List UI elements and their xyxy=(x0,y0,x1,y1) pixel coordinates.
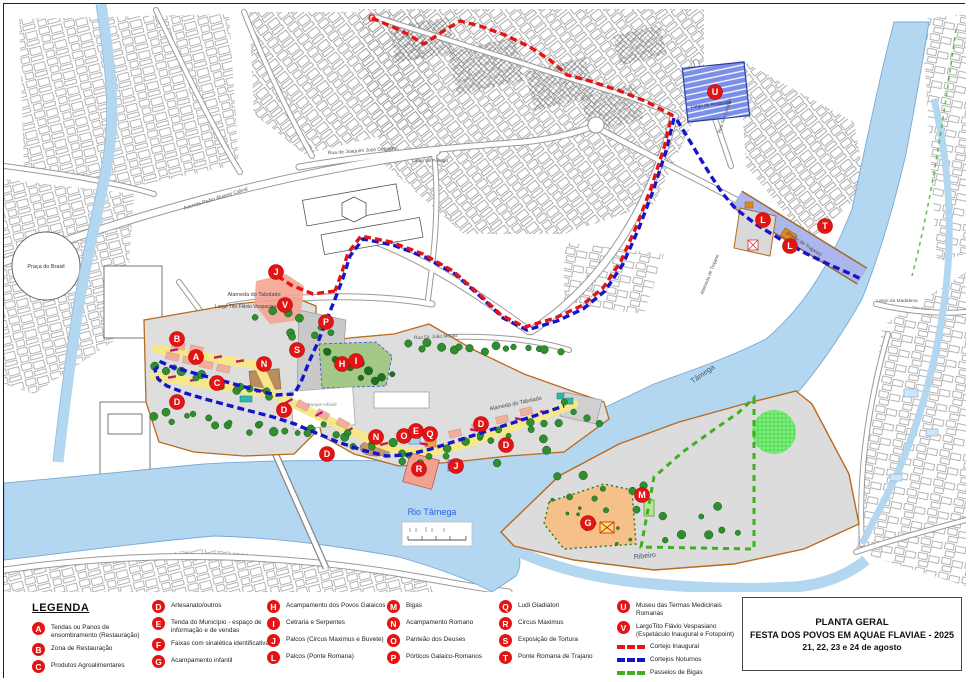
legend-label: Artesanato/outros xyxy=(171,600,221,610)
map-marker-N: N xyxy=(257,357,272,372)
legend-label: Palcos (Ponte Romana) xyxy=(286,651,354,661)
legend-label: Zona de Restauração xyxy=(51,643,112,653)
map-marker-A: A xyxy=(189,350,204,365)
tree-icon xyxy=(699,514,704,519)
tree-icon xyxy=(659,512,667,520)
tree-icon xyxy=(555,419,563,427)
tree-icon xyxy=(304,429,311,436)
svg-text:U: U xyxy=(712,87,719,97)
legend-marker-J: J xyxy=(267,634,280,647)
map-marker-P: P xyxy=(319,315,334,330)
tree-icon xyxy=(371,377,379,385)
legend-label: Panteão dos Deuses xyxy=(406,634,465,644)
tree-icon xyxy=(390,372,395,377)
tree-icon xyxy=(321,422,327,428)
tree-icon xyxy=(466,344,474,352)
legend-label: Faixas com sinalética identificativa xyxy=(171,638,269,648)
legend-item-E: ETenda do Município - espaço de informaç… xyxy=(152,617,270,634)
tree-icon xyxy=(246,430,252,436)
legend-label: Tendas ou Panos de ensombramento (Restau… xyxy=(51,622,150,639)
legend-label: Bigas xyxy=(406,600,422,610)
legend-item-A: ATendas ou Panos de ensombramento (Resta… xyxy=(32,622,150,639)
title-block: PLANTA GERAL FESTA DOS POVOS EM AQUAE FL… xyxy=(742,597,962,671)
legend-item-D: DArtesanato/outros xyxy=(152,600,270,613)
tree-icon xyxy=(577,513,580,516)
tree-icon xyxy=(526,345,532,351)
map-marker-S: S xyxy=(290,343,305,358)
tree-icon xyxy=(596,420,603,427)
tree-icon xyxy=(311,332,318,339)
map-marker-U: U xyxy=(708,85,723,100)
map-marker-D: D xyxy=(474,417,489,432)
legend-label: Acampamento dos Povos Galaicos xyxy=(286,600,385,610)
svg-text:D: D xyxy=(281,405,288,415)
tree-icon xyxy=(662,537,668,543)
legend-label: Palcos (Circus Maximus e Buvete) xyxy=(286,634,384,644)
legend-marker-U: U xyxy=(617,600,630,613)
tree-icon xyxy=(437,343,445,351)
legend-label: Circus Maximus xyxy=(518,617,563,627)
legend-label: Produtos Agroalimentares xyxy=(51,660,125,670)
legend-label: Acampamento Romano xyxy=(406,617,473,627)
svg-text:D: D xyxy=(503,440,510,450)
svg-text:I: I xyxy=(355,356,358,366)
legend-marker-C: C xyxy=(32,660,45,673)
map-marker-B: B xyxy=(170,332,185,347)
legend-marker-L: L xyxy=(267,651,280,664)
svg-text:B: B xyxy=(174,334,181,344)
map-marker-M: M xyxy=(635,488,650,503)
legend-item-M: MBigas xyxy=(387,600,499,613)
map-marker-T: T xyxy=(818,219,833,234)
map-marker-J: J xyxy=(269,265,284,280)
svg-text:N: N xyxy=(373,432,380,442)
legend-item-T: TPonte Romana de Trajano xyxy=(499,651,611,664)
map-marker-Q: Q xyxy=(423,427,438,442)
tree-icon xyxy=(719,527,725,533)
tree-icon xyxy=(295,314,303,322)
tree-icon xyxy=(493,459,501,467)
map-marker-N: N xyxy=(369,430,384,445)
map-label: Alameda do Tabolado xyxy=(227,292,280,298)
legend-marker-H: H xyxy=(267,600,280,613)
tree-icon xyxy=(289,333,296,340)
svg-text:Q: Q xyxy=(426,429,433,439)
tree-icon xyxy=(211,422,218,429)
legend-label: Ponte Romana de Trajano xyxy=(518,651,593,661)
svg-text:C: C xyxy=(214,378,221,388)
tree-icon xyxy=(358,375,364,381)
svg-text:H: H xyxy=(339,359,346,369)
tree-icon xyxy=(714,502,722,510)
tree-icon xyxy=(328,330,334,336)
tree-icon xyxy=(257,421,263,427)
tree-icon xyxy=(554,473,562,481)
tree-icon xyxy=(184,413,189,418)
legend-heading: LEGENDA xyxy=(32,602,150,614)
map-marker-E: E xyxy=(409,424,424,439)
tree-icon xyxy=(269,427,278,436)
svg-text:D: D xyxy=(324,449,331,459)
map-canvas: Praça do BrasilAvenida Pedro Álvares Cab… xyxy=(4,4,966,592)
map-marker-D: D xyxy=(499,438,514,453)
legend-item-R: RCircus Maximus xyxy=(499,617,611,630)
tree-icon xyxy=(364,367,372,375)
legend-route-label: Cortejo Inaugural xyxy=(650,643,699,650)
tree-icon xyxy=(344,429,351,436)
legend-label: Exposição de Tortura xyxy=(518,634,578,644)
legend-marker-S: S xyxy=(499,634,512,647)
tree-icon xyxy=(252,314,258,320)
tree-icon xyxy=(592,496,598,502)
legend-item-V: VLargoTito Flávio Vespasiano (Espetáculo… xyxy=(617,621,742,638)
map-marker-J: J xyxy=(449,459,464,474)
svg-text:O: O xyxy=(400,431,407,441)
tree-icon xyxy=(615,542,618,545)
tree-icon xyxy=(629,538,632,541)
tree-icon xyxy=(389,438,398,447)
legend-label: LargoTito Flávio Vespasiano (Espetáculo … xyxy=(636,621,742,638)
map-label: Praça do Brasil xyxy=(27,264,64,270)
svg-text:A: A xyxy=(193,352,200,362)
map-marker-L: L xyxy=(756,213,771,228)
legend-marker-F: F xyxy=(152,638,165,651)
svg-text:L: L xyxy=(760,215,766,225)
legend-item-L: LPalcos (Ponte Romana) xyxy=(267,651,389,664)
map-marker-H: H xyxy=(335,357,350,372)
tree-icon xyxy=(162,408,170,416)
legend-item-O: OPanteão dos Deuses xyxy=(387,634,499,647)
svg-text:D: D xyxy=(174,397,181,407)
svg-text:R: R xyxy=(416,464,423,474)
tree-icon xyxy=(323,348,328,353)
map-marker-D: D xyxy=(170,395,185,410)
tree-icon xyxy=(169,419,175,425)
tree-icon xyxy=(551,498,554,501)
tree-icon xyxy=(600,486,605,491)
legend-route-cortejo-inaugural: Cortejo Inaugural xyxy=(617,642,742,651)
map-label: Rio Tâmega xyxy=(408,507,457,517)
tree-icon xyxy=(584,415,591,422)
legend-label: Pórticos Galaico-Romanos xyxy=(406,651,482,661)
tree-icon xyxy=(633,506,640,513)
legend-marker-N: N xyxy=(387,617,400,630)
tree-icon xyxy=(282,428,288,434)
legend-marker-A: A xyxy=(32,622,45,635)
tree-icon xyxy=(616,527,619,530)
svg-text:S: S xyxy=(294,345,300,355)
tree-icon xyxy=(503,346,509,352)
legend-marker-V: V xyxy=(617,621,630,634)
legend-route-label: Passeios de Bigas xyxy=(650,669,703,676)
legend-item-Q: QLudi Gladiatori xyxy=(499,600,611,613)
tree-icon xyxy=(578,507,581,510)
plan-title: PLANTA GERAL xyxy=(815,617,888,628)
legend-marker-T: T xyxy=(499,651,512,664)
svg-text:T: T xyxy=(822,221,828,231)
tree-icon xyxy=(566,512,569,515)
map-marker-R: R xyxy=(412,462,427,477)
tree-icon xyxy=(528,426,534,432)
legend-label: Cetraria e Serpentes xyxy=(286,617,345,627)
tree-icon xyxy=(481,348,489,356)
map-label: Largo do Postigo xyxy=(412,158,449,164)
map-marker-D: D xyxy=(277,403,292,418)
legend-label: Ludi Gladiatori xyxy=(518,600,559,610)
legend-marker-G: G xyxy=(152,655,165,668)
legend-item-G: GAcampamento infantil xyxy=(152,655,270,668)
tree-icon xyxy=(405,340,412,347)
tree-icon xyxy=(150,412,158,420)
legend-item-H: HAcampamento dos Povos Galaicos xyxy=(267,600,389,613)
tree-icon xyxy=(295,430,300,435)
legend-marker-R: R xyxy=(499,617,512,630)
tree-icon xyxy=(333,431,340,438)
plan-subtitle: FESTA DOS POVOS EM AQUAE FLAVIAE - 2025 xyxy=(750,630,954,640)
svg-text:J: J xyxy=(453,461,458,471)
plan-sheet: Praça do BrasilAvenida Pedro Álvares Cab… xyxy=(0,0,970,682)
tree-icon xyxy=(541,420,548,427)
svg-text:M: M xyxy=(638,490,646,500)
legend-route-label: Cortejos Noturnos xyxy=(650,656,702,663)
tree-icon xyxy=(488,438,494,444)
legend-marker-M: M xyxy=(387,600,400,613)
legend-marker-O: O xyxy=(387,634,400,647)
svg-text:P: P xyxy=(323,317,329,327)
legend-item-I: ICetraria e Serpentes xyxy=(267,617,389,630)
svg-text:N: N xyxy=(261,359,268,369)
legend-item-F: FFaixas com sinalética identificativa xyxy=(152,638,270,651)
legend-item-N: NAcampamento Romano xyxy=(387,617,499,630)
legend-item-P: PPórticos Galaico-Romanos xyxy=(387,651,499,664)
tree-icon xyxy=(419,346,426,353)
map-marker-L: L xyxy=(783,239,798,254)
legend-label: Tenda do Município - espaço de informaçã… xyxy=(171,617,270,634)
tree-icon xyxy=(542,446,550,454)
tree-icon xyxy=(567,494,573,500)
tree-icon xyxy=(540,346,548,354)
tree-icon xyxy=(579,471,588,480)
tree-icon xyxy=(162,367,170,375)
legend-marker-P: P xyxy=(387,651,400,664)
tree-icon xyxy=(704,531,713,540)
svg-text:L: L xyxy=(787,241,793,251)
tree-icon xyxy=(571,409,577,415)
tree-icon xyxy=(399,458,406,465)
map-label: Largo Tito Flávio Vespasiano xyxy=(215,304,279,310)
svg-text:J: J xyxy=(273,267,278,277)
map-marker-V: V xyxy=(278,298,293,313)
tree-icon xyxy=(558,349,565,356)
scale-inset xyxy=(402,522,472,546)
map-label: Largo da Madalena xyxy=(876,298,918,304)
tree-icon xyxy=(443,453,449,459)
svg-text:D: D xyxy=(478,419,485,429)
tree-icon xyxy=(227,420,232,425)
legend-marker-D: D xyxy=(152,600,165,613)
tree-icon xyxy=(492,342,500,350)
plan-dates: 21, 22, 23 e 24 de agosto xyxy=(802,642,901,652)
legend-item-C: CProdutos Agroalimentares xyxy=(32,660,150,673)
legend-item-S: SExposição de Tortura xyxy=(499,634,611,647)
tree-icon xyxy=(603,508,608,513)
legend-marker-I: I xyxy=(267,617,280,630)
legend-label: Acampamento infantil xyxy=(171,655,232,665)
svg-text:E: E xyxy=(413,426,419,436)
map-area: Praça do BrasilAvenida Pedro Álvares Cab… xyxy=(4,4,966,592)
map-label: Parque Infantil xyxy=(307,402,336,407)
svg-text:V: V xyxy=(282,300,288,310)
legend-label: Museu das Termas Medicinais Romanas xyxy=(636,600,742,617)
map-marker-I: I xyxy=(349,354,364,369)
legend-route-passeios-de-bigas: Passeios de Bigas xyxy=(617,668,742,677)
tree-icon xyxy=(206,415,212,421)
tree-icon xyxy=(443,445,451,453)
legend-item-J: JPalcos (Circus Maximus e Buvete) xyxy=(267,634,389,647)
legend-marker-B: B xyxy=(32,643,45,656)
tree-icon xyxy=(426,453,432,459)
legend-item-U: UMuseu das Termas Medicinais Romanas xyxy=(617,600,742,617)
legend-route-cortejos-noturnos: Cortejos Noturnos xyxy=(617,655,742,664)
tree-icon xyxy=(539,435,547,443)
tree-icon xyxy=(561,399,567,405)
tree-icon xyxy=(735,530,740,535)
legend-item-B: BZona de Restauração xyxy=(32,643,150,656)
legend-marker-Q: Q xyxy=(499,600,512,613)
map-marker-C: C xyxy=(210,376,225,391)
map-marker-G: G xyxy=(581,516,596,531)
tree-icon xyxy=(456,344,463,351)
green-circle-feature xyxy=(752,410,796,454)
tree-icon xyxy=(511,344,517,350)
tree-icon xyxy=(190,411,196,417)
map-marker-D: D xyxy=(320,447,335,462)
legend-marker-E: E xyxy=(152,617,165,630)
tree-icon xyxy=(677,530,686,539)
svg-text:G: G xyxy=(584,518,591,528)
